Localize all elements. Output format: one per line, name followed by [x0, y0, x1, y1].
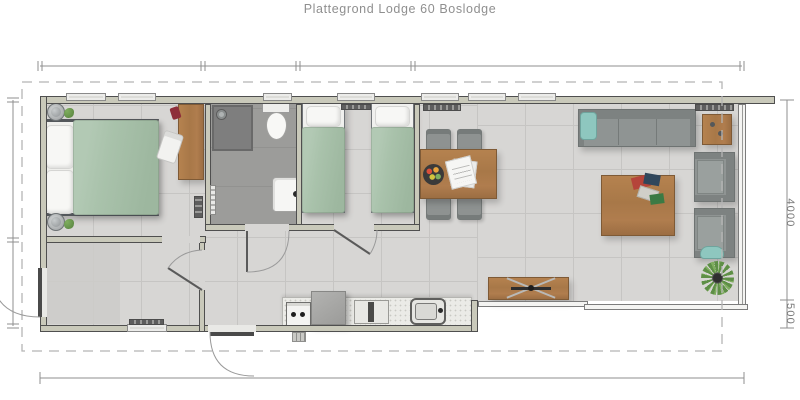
radiator	[129, 319, 164, 325]
bed-duvet	[302, 127, 345, 213]
oven	[286, 302, 311, 326]
window	[118, 93, 156, 101]
bedroom1-door-opening	[162, 236, 200, 243]
oven-knob	[291, 312, 296, 317]
side-table-item	[710, 122, 715, 127]
bedside-lamp	[47, 213, 65, 231]
window	[337, 93, 375, 101]
window	[263, 93, 292, 101]
sink-basin	[415, 303, 437, 320]
window	[518, 93, 556, 101]
potted-plant	[701, 261, 734, 295]
wall-rooms-south	[205, 224, 420, 231]
bathroom-radiator	[210, 185, 216, 215]
side-table	[702, 114, 732, 145]
dining-chair	[457, 197, 482, 220]
page-title: Plattegrond Lodge 60 Boslodge	[0, 2, 800, 16]
fruit-bowl	[423, 164, 444, 185]
front-door-swing	[210, 332, 254, 376]
hall-door-opening	[199, 250, 205, 290]
board-games	[649, 193, 664, 205]
wall-step	[471, 300, 478, 332]
side-table-item	[718, 131, 723, 136]
dimension-label-4000: 4000	[784, 198, 796, 227]
bed-duvet	[371, 127, 414, 213]
armchair-cushion	[700, 246, 724, 259]
sink-faucet	[438, 308, 443, 313]
armchair-seat	[697, 216, 724, 250]
bed-pillow	[46, 125, 74, 169]
decor-hub	[528, 285, 534, 291]
window	[421, 93, 459, 101]
armchair-seat	[697, 160, 724, 194]
side-entrance-door-swing	[0, 268, 40, 317]
glass-wall-south-right	[478, 301, 588, 307]
front-door-opening	[208, 325, 256, 332]
entry-hall-floor	[47, 242, 120, 324]
radiator	[695, 104, 734, 111]
sofa-chaise-cushion	[580, 112, 597, 140]
bedside-lamp	[47, 103, 65, 121]
extractor-vent	[292, 332, 306, 342]
oven-knob	[300, 312, 305, 317]
bathroom-door-opening	[245, 224, 289, 231]
bed-pillow	[46, 170, 74, 214]
side-entrance-opening	[40, 268, 47, 317]
glass-wall-east	[738, 104, 746, 305]
bed-pillow	[375, 106, 410, 127]
bedroom-radiator	[194, 196, 203, 218]
window	[66, 93, 106, 101]
sofa-seam	[618, 119, 619, 145]
hob-controls	[368, 302, 374, 322]
bed-pillow	[306, 106, 341, 127]
glass-wall-south-right	[584, 304, 748, 310]
dimension-label-500: 500	[784, 303, 796, 325]
wall-bathroom-east	[296, 104, 302, 231]
radiator	[341, 104, 371, 110]
window	[468, 93, 506, 101]
radiator	[423, 104, 461, 111]
bedroom2-door-opening	[334, 224, 374, 231]
shower-head	[216, 109, 227, 120]
fridge	[311, 291, 346, 325]
bed-duvet	[73, 120, 159, 215]
wall-south-left	[40, 325, 478, 332]
dining-chair	[426, 197, 451, 220]
wall-bedroom2-east	[414, 104, 420, 231]
floorplan-canvas: Plattegrond Lodge 60 Boslodge	[0, 0, 800, 400]
window	[127, 324, 167, 332]
sofa-seam	[656, 119, 657, 145]
